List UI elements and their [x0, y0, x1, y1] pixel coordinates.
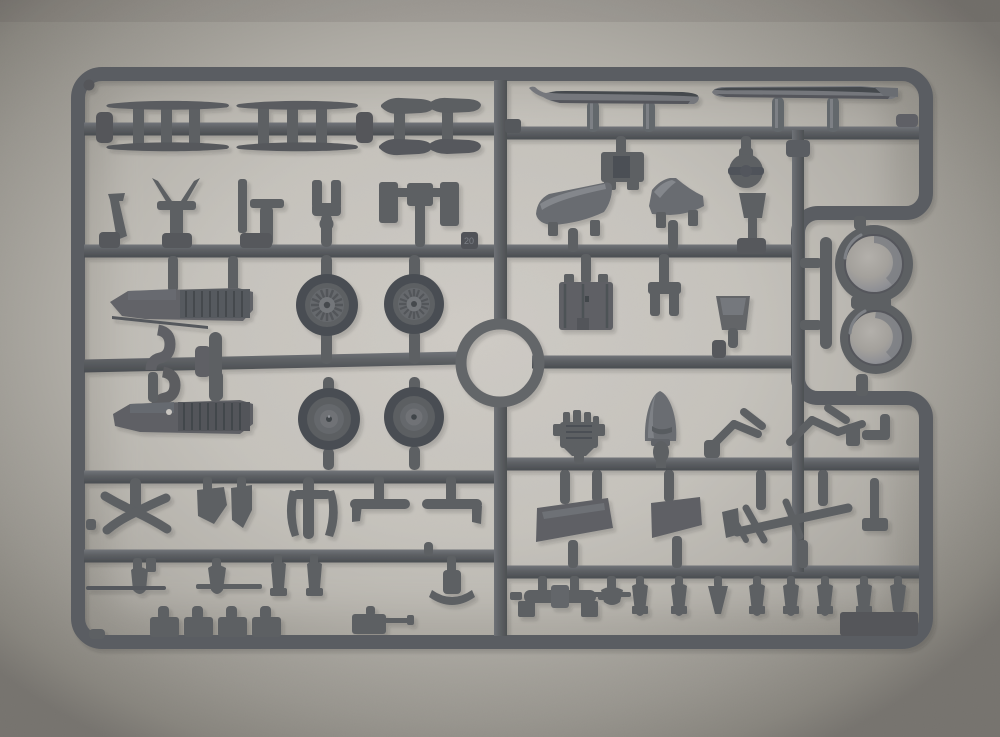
svg-text:20: 20 — [464, 236, 474, 246]
